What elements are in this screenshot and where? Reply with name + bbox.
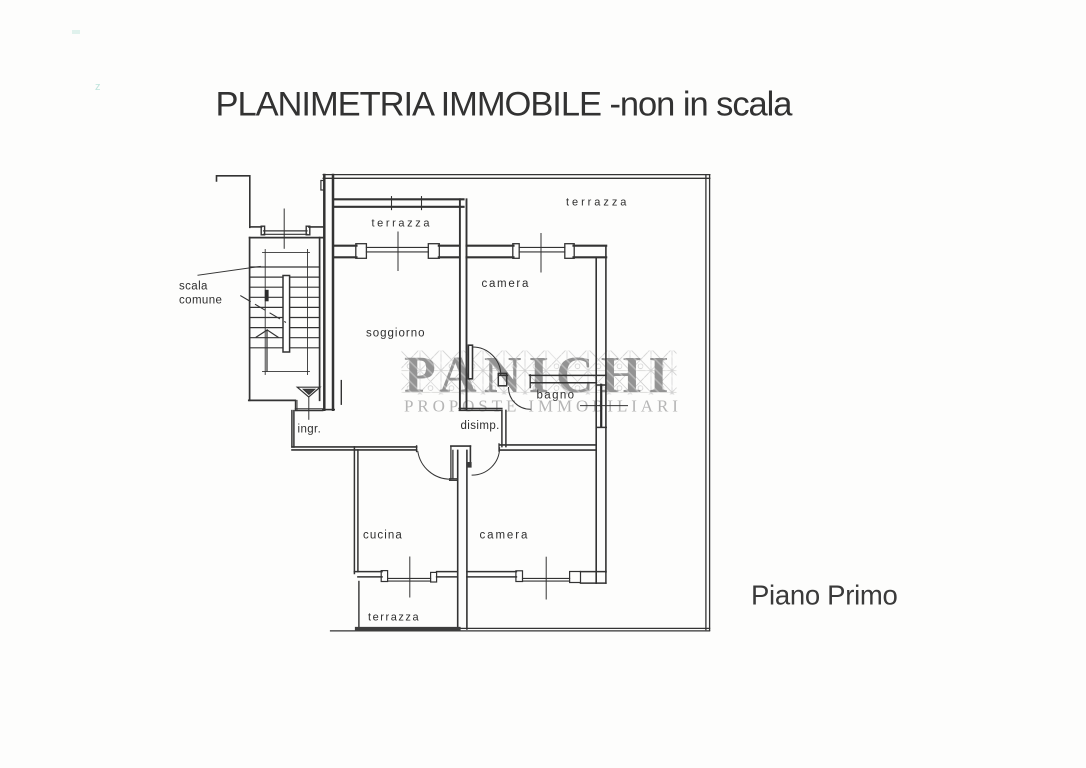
svg-text:bagno: bagno <box>537 390 576 402</box>
svg-text:terrazza: terrazza <box>372 218 433 230</box>
svg-text:camera: camera <box>482 278 531 290</box>
svg-text:terrazza: terrazza <box>368 612 420 624</box>
svg-text:terrazza: terrazza <box>566 197 629 209</box>
svg-text:soggiorno: soggiorno <box>366 328 426 340</box>
svg-text:ingr.: ingr. <box>298 424 322 436</box>
svg-text:disimp.: disimp. <box>461 420 500 432</box>
svg-text:z: z <box>95 81 101 93</box>
svg-text:camera: camera <box>480 530 530 542</box>
svg-text:Piano Primo: Piano Primo <box>751 580 898 611</box>
svg-text:PLANIMETRIA IMMOBILE -non in s: PLANIMETRIA IMMOBILE -non in scala <box>216 86 794 124</box>
svg-text:scala: scala <box>179 281 208 293</box>
svg-text:comune: comune <box>179 295 222 307</box>
svg-text:cucina: cucina <box>363 530 403 542</box>
